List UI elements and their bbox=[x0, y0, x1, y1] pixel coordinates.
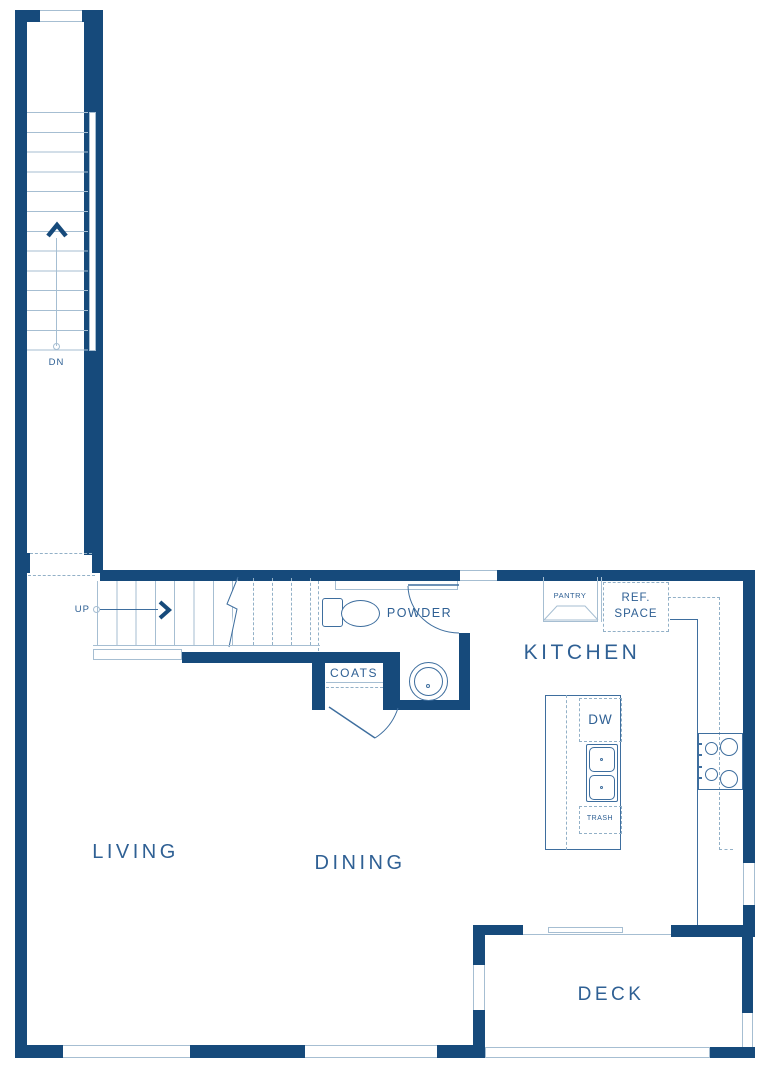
pantry-shelf bbox=[543, 600, 599, 622]
kitchen-right-window bbox=[743, 863, 755, 905]
deck-left-wall-upper bbox=[473, 925, 485, 965]
coats-right-wall bbox=[383, 660, 400, 710]
wall-top-east bbox=[497, 570, 755, 581]
coats-rod-dash bbox=[326, 687, 383, 688]
burner-1 bbox=[705, 742, 718, 755]
deck-bottom-rail bbox=[485, 1047, 710, 1058]
wall-bottom-1 bbox=[15, 1045, 63, 1058]
dn-arrow-origin bbox=[53, 343, 60, 350]
label-stairs-up: UP bbox=[58, 602, 90, 616]
label-pantry: PANTRY bbox=[550, 589, 590, 601]
dining-window bbox=[305, 1045, 437, 1058]
up-arrow-line bbox=[100, 609, 158, 610]
label-deck: DECK bbox=[578, 983, 644, 1007]
stair-break-line bbox=[224, 577, 240, 647]
upper-cabinet-dash-end bbox=[719, 849, 733, 850]
toilet-tank bbox=[322, 598, 343, 627]
range-knob-1 bbox=[699, 743, 702, 745]
stairs-up-dashed-tread-3 bbox=[291, 578, 292, 645]
dn-arrow-line bbox=[56, 238, 57, 346]
sink-drain-1 bbox=[600, 758, 603, 761]
upper-cabinet-dash-v bbox=[719, 597, 720, 850]
opening-above-dash-2 bbox=[28, 575, 95, 576]
label-dishwasher: DW bbox=[582, 710, 619, 728]
half-wall-stairs bbox=[182, 652, 400, 663]
label-powder: POWDER bbox=[382, 604, 457, 621]
deck-corner-br bbox=[710, 1047, 755, 1058]
powder-sink-inner bbox=[414, 667, 443, 696]
living-window bbox=[63, 1045, 190, 1058]
powder-sink-drain bbox=[426, 684, 430, 688]
range-knob-3 bbox=[699, 766, 702, 768]
entry-window bbox=[460, 570, 497, 581]
opening-above-dash-1 bbox=[30, 553, 92, 554]
label-kitchen: KITCHEN bbox=[522, 640, 642, 665]
label-living: LIVING bbox=[88, 839, 183, 865]
burner-2 bbox=[720, 738, 738, 756]
floor-plan: DN UP POWDER bbox=[0, 0, 766, 1078]
stairs-up-dashed-tread-2 bbox=[272, 578, 273, 645]
powder-right-wall bbox=[459, 633, 470, 710]
range-knob-4 bbox=[699, 777, 702, 779]
label-ref-space: REF. SPACE bbox=[603, 589, 669, 623]
coats-left-wall bbox=[312, 657, 325, 710]
label-ref-line2: SPACE bbox=[614, 606, 657, 622]
upper-cabinet-dash-h bbox=[668, 597, 720, 598]
coats-door-swing bbox=[327, 706, 400, 742]
up-arrow-origin bbox=[93, 606, 100, 613]
wall-left bbox=[15, 10, 27, 1058]
label-dining: DINING bbox=[305, 850, 415, 876]
deck-left-window bbox=[473, 965, 485, 1010]
deck-left-wall-lower bbox=[473, 1010, 485, 1047]
slider-track bbox=[523, 934, 671, 935]
counter-edge-h bbox=[670, 619, 698, 620]
deck-right-window bbox=[742, 1013, 753, 1047]
deck-right-wall-upper bbox=[742, 937, 753, 1013]
slider-door-leaf bbox=[548, 927, 623, 933]
label-ref-line1: REF. bbox=[622, 590, 651, 606]
wall-right-upper bbox=[743, 570, 755, 863]
toilet-bowl bbox=[341, 600, 380, 627]
dn-arrow-head-icon bbox=[46, 222, 68, 239]
powder-bottom-wall bbox=[400, 700, 470, 710]
stairs-dn-handrail bbox=[89, 112, 96, 351]
wall-bottom-2 bbox=[190, 1045, 305, 1058]
burner-4 bbox=[720, 770, 738, 788]
stair-top-window bbox=[40, 10, 82, 22]
wall-top-west bbox=[100, 570, 460, 581]
coats-shelf-line bbox=[326, 682, 383, 683]
label-coats: COATS bbox=[329, 665, 379, 680]
label-stairs-down: DN bbox=[40, 355, 73, 369]
sink-drain-2 bbox=[600, 786, 603, 789]
pantry-divider bbox=[601, 577, 602, 622]
up-handrail-band bbox=[93, 649, 182, 660]
burner-3 bbox=[705, 768, 718, 781]
stairs-up-dashed-tread-1 bbox=[253, 578, 254, 645]
up-arrow-head-icon bbox=[158, 600, 172, 620]
island-overhang-dash bbox=[566, 695, 567, 850]
deck-top-wall-right bbox=[671, 925, 755, 937]
range-knob-2 bbox=[699, 754, 702, 756]
stairs-up-dashed-tread-4 bbox=[310, 578, 311, 645]
stairs-open-above-edge bbox=[318, 581, 319, 651]
label-trash: TRASH bbox=[584, 813, 616, 823]
up-handrail-line bbox=[93, 645, 320, 646]
